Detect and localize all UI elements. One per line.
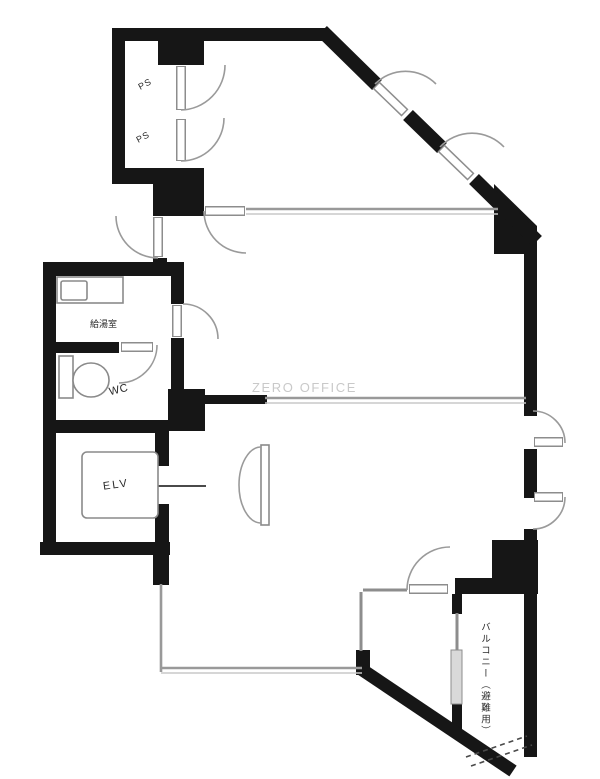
wall-lower-left-stub [153, 542, 169, 585]
wall-entry-stub-top [153, 184, 167, 216]
door-arc-ps1 [181, 65, 225, 110]
partitions [161, 209, 526, 673]
wall-partition-b-black [205, 395, 267, 404]
doors [116, 65, 565, 590]
wall-balcony-right [524, 594, 537, 757]
wall-column-center [168, 389, 205, 431]
door-arc-entrance [116, 216, 158, 258]
door-arc-hall [204, 211, 246, 253]
balcony-window-icon [451, 650, 462, 704]
wall-elv-bottom [40, 542, 170, 555]
wall-right-a [524, 250, 537, 416]
kitchen-label: 給湯室 [90, 317, 117, 330]
wall-wc-bottom [43, 420, 166, 433]
wall-ps-bottom [112, 168, 162, 184]
toilet-tank-icon [59, 356, 73, 398]
toilet-bowl-icon [73, 363, 109, 397]
wall-right-b [524, 449, 537, 498]
door-leaf-interior [261, 445, 269, 525]
wall-hall-left-a [171, 262, 184, 304]
wall-diagonal-seg1 [322, 31, 377, 85]
wall-balcony-top [455, 578, 538, 594]
wall-top [113, 28, 325, 41]
wall-outer-left [43, 262, 56, 555]
door-arc-diagonal1 [375, 71, 436, 84]
walls [40, 28, 538, 771]
watermark-text: ZERO OFFICE [252, 380, 357, 395]
door-arc-diagonal2 [440, 133, 504, 147]
door-arc-br-room [407, 547, 450, 590]
door-arc-interior [239, 447, 261, 523]
sink-bowl-icon [61, 281, 87, 300]
wall-column-topleft [158, 28, 204, 65]
wall-left-ps [112, 28, 125, 184]
wall-kitchen-wc-divider [43, 342, 119, 353]
wall-kitchen-top [43, 262, 184, 276]
floorplan-page: PS PS 給湯室 WC ELV バルコニー（避難用） ZERO OFFICE [0, 0, 600, 779]
door-arc-ps2 [181, 118, 224, 161]
wall-balcony-left-a [452, 594, 462, 614]
wall-diagonal-seg2 [408, 115, 442, 148]
balcony-label: バルコニー（避難用） [477, 622, 491, 737]
door-arc-kitchen [183, 304, 218, 339]
